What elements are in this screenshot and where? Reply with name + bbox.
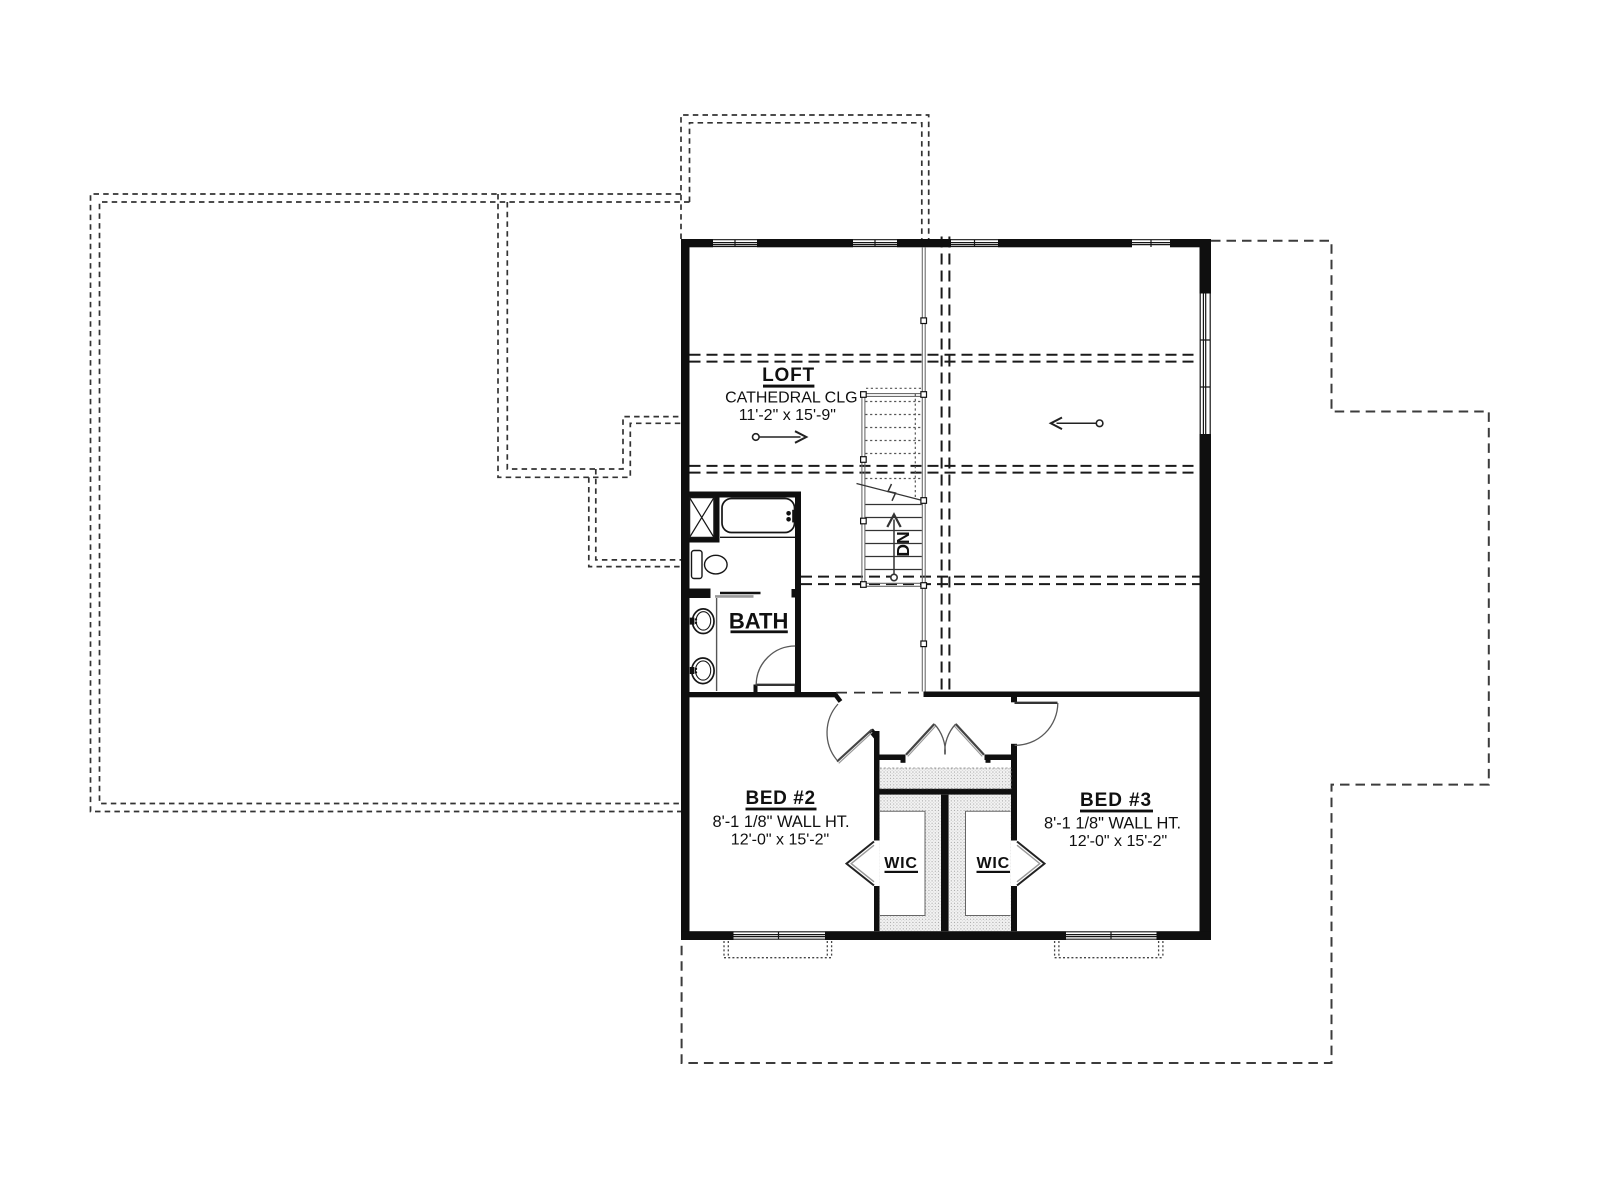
svg-text:12'-0" x 15'-2": 12'-0" x 15'-2" [731,831,829,848]
svg-text:BATH: BATH [729,609,788,634]
svg-text:12'-0" x 15'-2": 12'-0" x 15'-2" [1069,833,1167,850]
svg-text:LOFT: LOFT [762,365,815,386]
svg-text:DN: DN [893,531,913,556]
svg-text:BED #3: BED #3 [1080,790,1152,811]
svg-text:8'-1 1/8" WALL HT.: 8'-1 1/8" WALL HT. [1044,815,1181,833]
svg-text:BED #2: BED #2 [746,788,816,809]
svg-text:8'-1 1/8" WALL HT.: 8'-1 1/8" WALL HT. [712,813,849,831]
svg-text:11'-2" x 15'-9": 11'-2" x 15'-9" [739,407,836,424]
svg-text:WIC: WIC [976,855,1010,872]
svg-text:CATHEDRAL CLG: CATHEDRAL CLG [725,390,857,407]
svg-text:WIC: WIC [884,855,918,872]
